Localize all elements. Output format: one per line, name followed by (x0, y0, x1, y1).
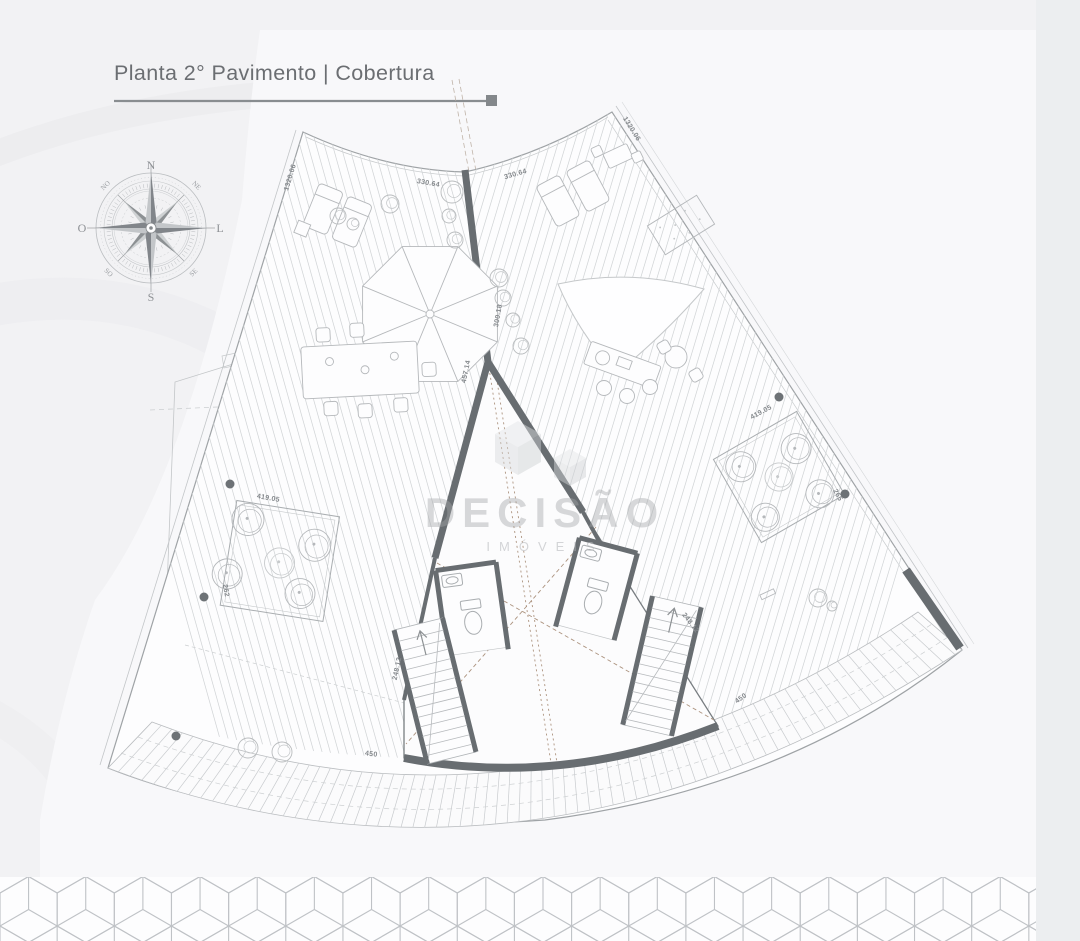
bar-stool (597, 381, 612, 396)
compass-tick (145, 205, 146, 208)
compass-tick (188, 209, 192, 211)
compass-tick (117, 199, 120, 202)
compass-tick (191, 220, 195, 221)
compass-tick (168, 238, 171, 240)
compass-tick (122, 259, 125, 262)
compass-tick (161, 185, 162, 189)
compass-tick (156, 247, 157, 250)
compass-arm-dark (146, 228, 152, 284)
compass-tick (186, 248, 189, 250)
right-margin-strip (1036, 0, 1080, 941)
title-end-square (486, 95, 497, 106)
compass-tick (131, 238, 134, 240)
compass-tick (111, 245, 115, 247)
hex-cube-spoke (0, 860, 29, 877)
watermark-name: DECISÃO (425, 489, 665, 536)
chair (350, 323, 365, 338)
page-title: Planta 2° Pavimento | Cobertura (114, 61, 435, 85)
compass-tick (168, 265, 170, 269)
compass-tick (125, 261, 127, 264)
compass-arm-dark (95, 223, 151, 229)
chair (394, 398, 409, 413)
compass-tick (112, 248, 115, 250)
compass-tick (108, 216, 112, 217)
compass-tick (115, 251, 118, 253)
compass-tick (165, 186, 166, 190)
compass-tick (107, 235, 111, 236)
compass-se: SE (188, 267, 199, 278)
compass-tick (188, 245, 192, 247)
compass-tick (165, 266, 166, 270)
compass-arm (95, 223, 151, 234)
column-dot (172, 732, 181, 741)
compass-tick (109, 242, 113, 243)
floor-plan-drawing: Planta 2° Pavimento | Cobertura (0, 0, 1080, 941)
compass-sw: SO (102, 267, 114, 279)
compass-tick (115, 202, 118, 204)
chair (324, 401, 339, 416)
compass-n: N (147, 158, 156, 172)
compass-tick (190, 238, 194, 239)
compass-s: S (148, 290, 155, 304)
floor-plan-page: Planta 2° Pavimento | Cobertura (0, 0, 1080, 941)
chair (358, 403, 373, 418)
compass-arm (146, 172, 157, 228)
compass-tick (136, 186, 137, 190)
compass-arm-dark (151, 172, 157, 228)
compass-w: O (78, 221, 87, 235)
compass-tick (158, 268, 159, 272)
chair (316, 328, 331, 343)
compass-tick (108, 238, 112, 239)
compass-tick (107, 220, 111, 221)
compass-tick (128, 233, 131, 234)
compass-tick (168, 216, 171, 218)
compass-tick (168, 188, 170, 192)
compass-star (95, 172, 207, 284)
compass-ne: NE (190, 179, 202, 191)
compass-tick (136, 266, 137, 270)
bar-stool (620, 389, 635, 404)
compass-tick (189, 213, 193, 214)
compass-tick (109, 213, 113, 214)
column-dot (200, 593, 209, 602)
dining-table (301, 341, 420, 399)
compass-arm (146, 228, 157, 284)
compass-tick (129, 263, 131, 266)
compass-tick (161, 267, 162, 271)
compass-tick (191, 235, 195, 236)
compass-tick (145, 247, 146, 250)
compass-tick (111, 209, 115, 211)
compass-tick (128, 222, 131, 223)
bar-stool (643, 380, 658, 395)
compass-tick (156, 205, 157, 208)
compass-tick (170, 222, 173, 223)
compass-arm (151, 223, 207, 234)
compass-tick (174, 192, 176, 195)
compass-tick (117, 254, 120, 257)
compass-tick (182, 254, 185, 257)
column-dot (226, 480, 235, 489)
compass-tick (132, 188, 134, 192)
compass-tick (161, 245, 163, 248)
compass-tick (112, 206, 115, 208)
compass-tick (170, 233, 173, 234)
watermark-subtitle: IMÓVEIS (486, 539, 603, 554)
compass-tick (177, 259, 180, 262)
compass-arm-dark (151, 228, 207, 234)
compass-tick (139, 208, 141, 211)
compass-nw: NO (99, 179, 112, 192)
compass-tick (139, 245, 141, 248)
compass-tick (182, 199, 185, 202)
compass-tick (143, 184, 144, 188)
compass-arm-light (146, 172, 152, 228)
compass-e: L (216, 221, 223, 235)
compass-tick (125, 192, 127, 195)
compass-tick (177, 194, 180, 197)
compass-tick (184, 202, 187, 204)
compass-tick (139, 185, 140, 189)
compass-tick (171, 263, 173, 266)
compass-tick (122, 194, 125, 197)
compass-tick (139, 267, 140, 271)
compass-arm-light (151, 228, 157, 284)
compass-tick (158, 184, 159, 188)
compass-arm-light (95, 228, 151, 234)
compass-tick (174, 261, 176, 264)
compass-tick (186, 206, 189, 208)
compass-arm-light (151, 223, 207, 229)
compass-tick (171, 189, 173, 192)
compass-tick (131, 216, 134, 218)
compass-tick (189, 242, 193, 243)
compass-tick (132, 265, 134, 269)
chair (422, 362, 437, 377)
compass-tick (184, 251, 187, 253)
compass-tick (143, 268, 144, 272)
column-dot (775, 393, 784, 402)
compass-tick (129, 189, 131, 192)
compass-tick (161, 208, 163, 211)
compass-tick (190, 216, 194, 217)
